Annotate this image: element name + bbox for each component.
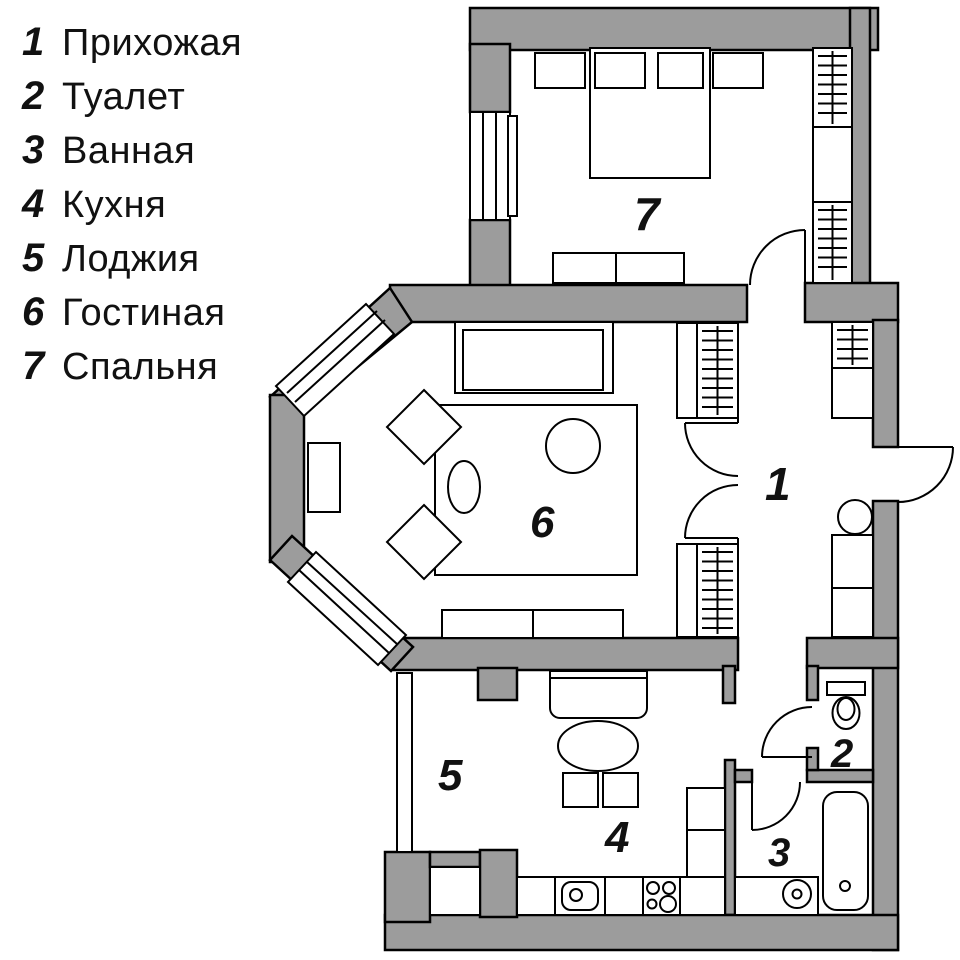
floor-plan-page: 1 Прихожая 2 Туалет 3 Ванная 4 Кухня 5 Л… xyxy=(0,0,960,960)
nightstand xyxy=(713,53,763,88)
legend: 1 Прихожая 2 Туалет 3 Ванная 4 Кухня 5 Л… xyxy=(22,20,242,398)
legend-label: Кухня xyxy=(62,184,166,227)
cabinet xyxy=(832,535,873,588)
window-bay-lower xyxy=(288,552,406,665)
legend-number: 1 xyxy=(22,20,62,65)
legend-label: Спальня xyxy=(62,346,218,389)
kitchen-table xyxy=(558,721,638,771)
room-label-bedroom: 7 xyxy=(634,188,662,240)
window-loggia-bottom xyxy=(430,867,480,915)
bench xyxy=(533,610,623,638)
stool xyxy=(838,500,872,534)
door-toilet xyxy=(762,707,812,757)
legend-number: 6 xyxy=(22,290,62,335)
room-label-living: 6 xyxy=(530,498,555,547)
dresser xyxy=(616,253,684,283)
pillow xyxy=(595,53,645,88)
dresser xyxy=(553,253,616,283)
door-bathroom xyxy=(752,782,800,830)
fridge-cabinet xyxy=(687,788,725,877)
room-bedroom xyxy=(535,48,852,285)
tv-stand xyxy=(308,443,340,512)
washing-machine-knob xyxy=(793,890,802,899)
stool xyxy=(603,773,638,807)
legend-number: 7 xyxy=(22,344,62,389)
window-bay-upper xyxy=(276,304,394,416)
room-label-toilet: 2 xyxy=(830,732,853,776)
nightstand xyxy=(535,53,585,88)
entrance-door xyxy=(898,447,953,502)
legend-label: Гостиная xyxy=(62,292,226,335)
legend-label: Прихожая xyxy=(62,22,242,65)
legend-label: Ванная xyxy=(62,130,195,173)
legend-item-5: 5 Лоджия xyxy=(22,236,242,290)
window-loggia-side xyxy=(397,673,412,852)
legend-number: 3 xyxy=(22,128,62,173)
room-label-hallway: 1 xyxy=(765,458,791,510)
bathtub xyxy=(823,792,868,910)
legend-number: 2 xyxy=(22,74,62,119)
legend-item-4: 4 Кухня xyxy=(22,182,242,236)
legend-number: 5 xyxy=(22,236,62,281)
side-table xyxy=(448,461,480,513)
wardrobe xyxy=(677,323,738,418)
bench xyxy=(442,610,533,638)
bathtub-drain xyxy=(840,881,850,891)
toilet-bowl-inner xyxy=(838,698,855,720)
sofa-seat xyxy=(463,330,603,390)
toilet-tank xyxy=(827,682,865,695)
legend-label: Лоджия xyxy=(62,238,200,281)
cabinet xyxy=(832,588,873,637)
window-bedroom xyxy=(470,112,517,220)
double-door-living xyxy=(685,423,738,538)
legend-number: 4 xyxy=(22,182,62,227)
room-label-kitchen: 4 xyxy=(604,813,629,862)
legend-item-1: 1 Прихожая xyxy=(22,20,242,74)
room-kitchen xyxy=(517,671,725,915)
legend-item-3: 3 Ванная xyxy=(22,128,242,182)
room-living xyxy=(308,322,738,638)
pillow xyxy=(658,53,703,88)
room-label-loggia: 5 xyxy=(438,751,463,800)
kitchen-counter xyxy=(517,877,725,915)
door-bedroom xyxy=(750,230,805,285)
legend-item-2: 2 Туалет xyxy=(22,74,242,128)
stool xyxy=(563,773,598,807)
legend-item-7: 7 Спальня xyxy=(22,344,242,398)
room-label-bathroom: 3 xyxy=(768,831,790,875)
sink-drain xyxy=(570,889,582,901)
legend-item-6: 6 Гостиная xyxy=(22,290,242,344)
round-table xyxy=(546,419,600,473)
room-bathroom xyxy=(735,782,868,915)
legend-label: Туалет xyxy=(62,76,185,119)
